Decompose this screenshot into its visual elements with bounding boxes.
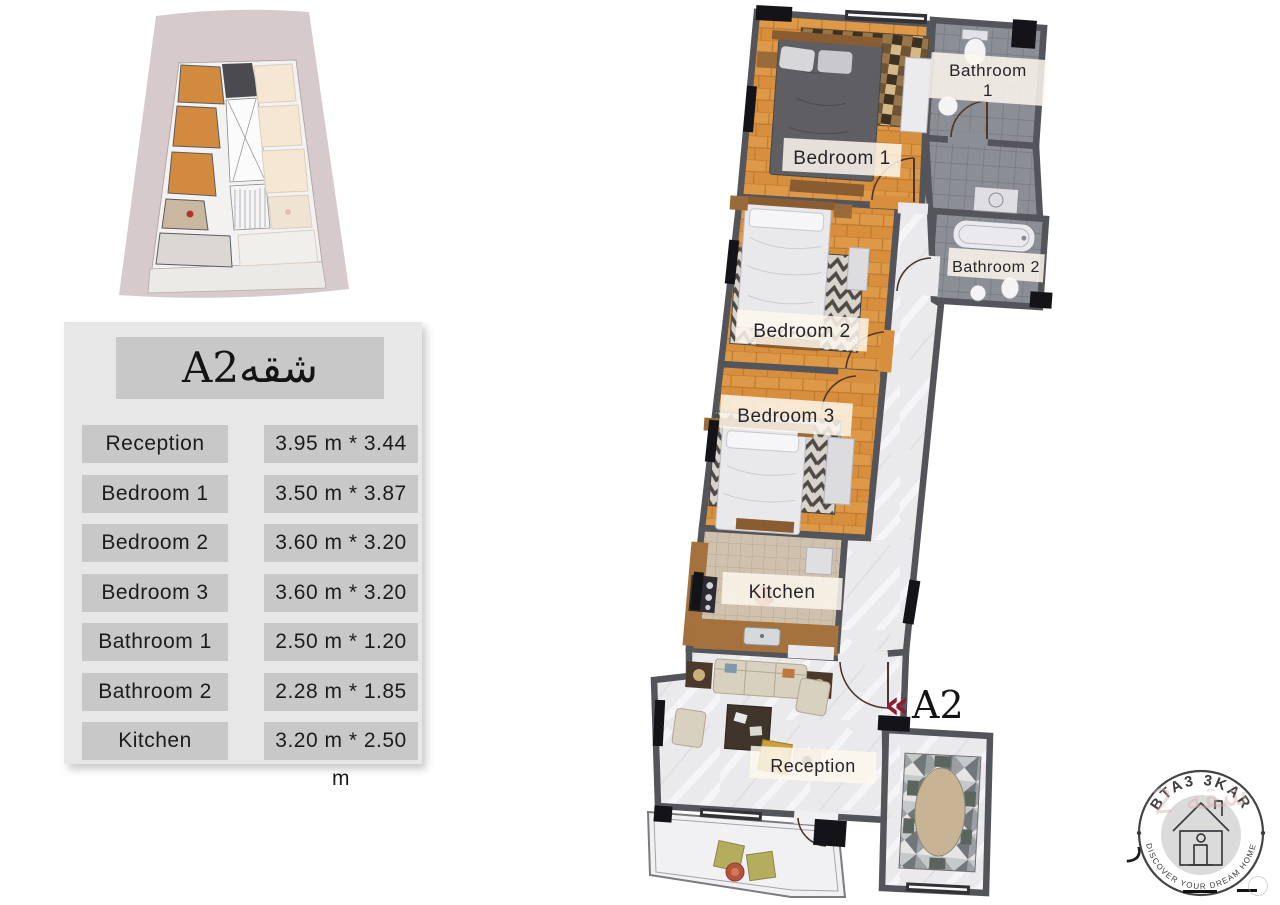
page: A2شقه Reception 3.95 m * 3.44 m Bedroom …: [0, 0, 1280, 905]
room-size-cell: 3.95 m * 3.44 m: [264, 425, 418, 463]
room-name-cell: Bathroom 2: [82, 673, 228, 711]
label-kitchen: Kitchen: [749, 582, 816, 603]
sofa: [713, 659, 807, 699]
room-name-cell: Kitchen: [82, 722, 228, 760]
table-row: Kitchen 3.20 m * 2.50 m: [64, 722, 422, 760]
bed-bedroom3: [712, 418, 810, 535]
room-size-cell: 2.50 m * 1.20 m: [264, 623, 418, 661]
logo-dot: [1137, 831, 1141, 835]
table-row: Reception 3.95 m * 3.44 m: [64, 425, 422, 463]
label-bathroom2: Bathroom 2: [952, 259, 1040, 276]
appliance: [805, 547, 833, 575]
label-bedroom1: Bedroom 1: [793, 148, 890, 169]
washing-machine: [973, 186, 1019, 213]
nightstand: [834, 203, 853, 218]
room-name-cell: Bedroom 3: [82, 574, 228, 612]
room-size-cell: 2.28 m * 1.85 m: [264, 673, 418, 711]
pillow: [779, 46, 816, 73]
unit-marker-label: A2: [911, 683, 964, 727]
wardrobe-bedroom1: [900, 57, 931, 133]
logo-dot: [1261, 831, 1265, 835]
label-bedroom3: Bedroom 3: [737, 406, 834, 427]
label-reception: Reception: [770, 756, 856, 776]
dining-chair: [934, 756, 951, 768]
room-name-cell: Reception: [82, 425, 228, 463]
dining-chair: [903, 818, 915, 834]
label-bathroom1: Bathroom: [949, 61, 1027, 80]
overview-faded-flower: [285, 209, 291, 215]
pillow: [817, 50, 852, 74]
nightstand: [730, 195, 749, 210]
label-bathroom1-num: 1: [983, 81, 993, 100]
watermark-stamp: [1248, 876, 1268, 896]
unit-marker: « A2: [884, 682, 964, 728]
apartment-floor-plan: Bedroom 1 Bathroom 1 Bathroom 2 Bedroom …: [640, 0, 1060, 905]
table-row: Bedroom 1 3.50 m * 3.87 m: [64, 475, 422, 513]
room-name-cell: Bathroom 1: [82, 623, 228, 661]
room-name-cell: Bedroom 1: [82, 475, 228, 513]
label-bedroom2: Bedroom 2: [753, 321, 850, 342]
dining-furniture: [899, 753, 981, 872]
wardrobe-bedroom3: [824, 437, 855, 505]
sink-icon: [744, 627, 781, 646]
dining-chair: [964, 791, 976, 807]
armchair: [795, 678, 830, 717]
building-overview-plan: [100, 0, 360, 310]
unit-spec-panel: A2شقه Reception 3.95 m * 3.44 m Bedroom …: [64, 322, 422, 764]
unit-title: A2شقه: [116, 337, 384, 399]
nightstand: [756, 51, 777, 68]
dresser: [847, 247, 870, 290]
overview-kitchen-flower: [187, 211, 194, 218]
sink-icon: [970, 285, 986, 301]
floor-cushion: [746, 851, 775, 880]
room-size-cell: 3.20 m * 2.50 m: [264, 722, 418, 760]
table-row: Bathroom 2 2.28 m * 1.85 m: [64, 673, 422, 711]
table-row: Bedroom 2 3.60 m * 3.20 m: [64, 524, 422, 562]
dining-chair: [929, 858, 946, 870]
spec-rows: Reception 3.95 m * 3.44 m Bedroom 1 3.50…: [64, 425, 422, 772]
watermark-underline: [1183, 890, 1217, 893]
table-row: Bedroom 3 3.60 m * 3.20 m: [64, 574, 422, 612]
dining-chair: [907, 780, 919, 796]
unit-marker-arrow-icon: «: [884, 682, 910, 728]
room-size-cell: 3.60 m * 3.20 m: [264, 524, 418, 562]
room-name-cell: Bedroom 2: [82, 524, 228, 562]
armchair: [672, 708, 707, 748]
room-size-cell: 3.60 m * 3.20 m: [264, 574, 418, 612]
table-row: Bathroom 1 2.50 m * 1.20 m: [64, 623, 422, 661]
room-size-cell: 3.50 m * 3.87 m: [264, 475, 418, 513]
